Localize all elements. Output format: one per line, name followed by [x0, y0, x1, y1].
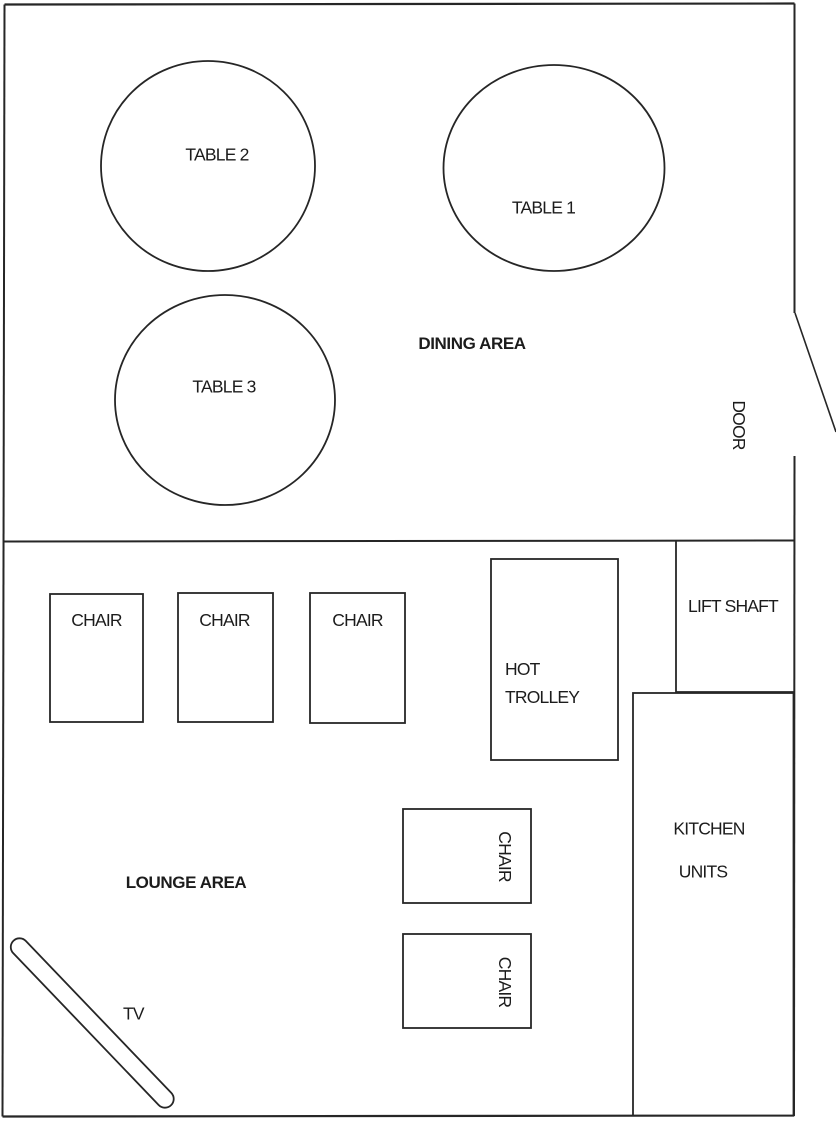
- svg-text:CHAIR: CHAIR: [71, 610, 122, 630]
- svg-text:TABLE 2: TABLE 2: [185, 145, 248, 165]
- svg-text:CHAIR: CHAIR: [332, 610, 383, 630]
- svg-text:HOT: HOT: [505, 659, 541, 679]
- svg-text:DOOR: DOOR: [729, 400, 749, 449]
- svg-text:CHAIR: CHAIR: [495, 831, 515, 882]
- svg-text:CHAIR: CHAIR: [495, 957, 515, 1008]
- svg-text:TABLE 1: TABLE 1: [512, 198, 575, 218]
- svg-text:KITCHEN: KITCHEN: [673, 819, 744, 839]
- svg-text:UNITS: UNITS: [679, 862, 728, 882]
- svg-text:LIFT SHAFT: LIFT SHAFT: [688, 596, 779, 616]
- svg-text:TABLE 3: TABLE 3: [192, 377, 255, 397]
- svg-text:LOUNGE AREA: LOUNGE AREA: [126, 873, 247, 892]
- svg-text:DINING AREA: DINING AREA: [418, 334, 525, 353]
- svg-text:TV: TV: [123, 1004, 145, 1024]
- svg-text:TROLLEY: TROLLEY: [505, 687, 580, 707]
- svg-text:CHAIR: CHAIR: [199, 610, 250, 630]
